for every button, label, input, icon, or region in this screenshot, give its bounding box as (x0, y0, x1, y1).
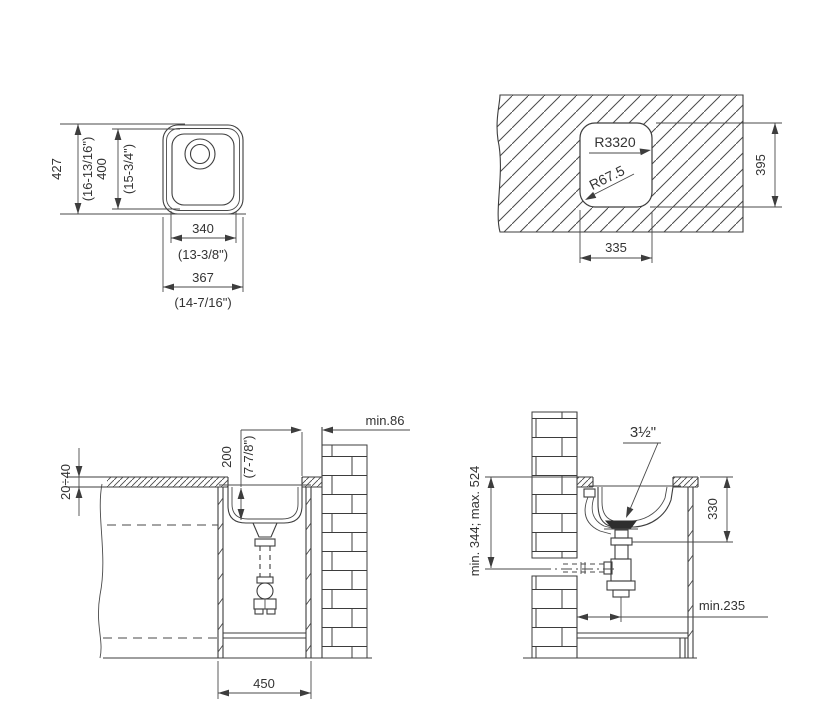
dim-200-inches: (7-7/8") (241, 436, 256, 479)
dim-450: 450 (253, 676, 275, 691)
brick-wall-side (532, 412, 577, 658)
dim-340: 340 (192, 221, 214, 236)
counter-left (107, 478, 228, 488)
brick-wall-front (322, 427, 367, 658)
dim-20-40: 20÷40 (58, 464, 73, 500)
dim-335: 335 (605, 240, 627, 255)
label-3-1-2: 3½" (630, 424, 656, 441)
technical-drawing: 427 (16-13/16") 400 (15-3/4") 340 (13-3/… (0, 0, 820, 724)
dim-427-inches: (16-13/16") (80, 137, 95, 202)
dim-367-inches: (14-7/16") (174, 295, 231, 310)
dim-400-inches: (15-3/4") (121, 144, 136, 194)
dim-330: 330 (705, 498, 720, 520)
dim-427: 427 (49, 158, 64, 180)
counter-right (302, 478, 322, 488)
label-r3320: R3320 (594, 134, 635, 150)
dim-200: 200 (219, 446, 234, 468)
dim-367: 367 (192, 270, 214, 285)
dim-min235: min.235 (699, 598, 745, 613)
dim-400: 400 (94, 158, 109, 180)
dim-min86: min.86 (365, 413, 404, 428)
dim-340-inches: (13-3/8") (178, 247, 228, 262)
drawing-canvas: 427 (16-13/16") 400 (15-3/4") 340 (13-3/… (0, 0, 820, 724)
dim-395: 395 (753, 154, 768, 176)
dim-min344-max524: min. 344; max. 524 (467, 466, 482, 577)
